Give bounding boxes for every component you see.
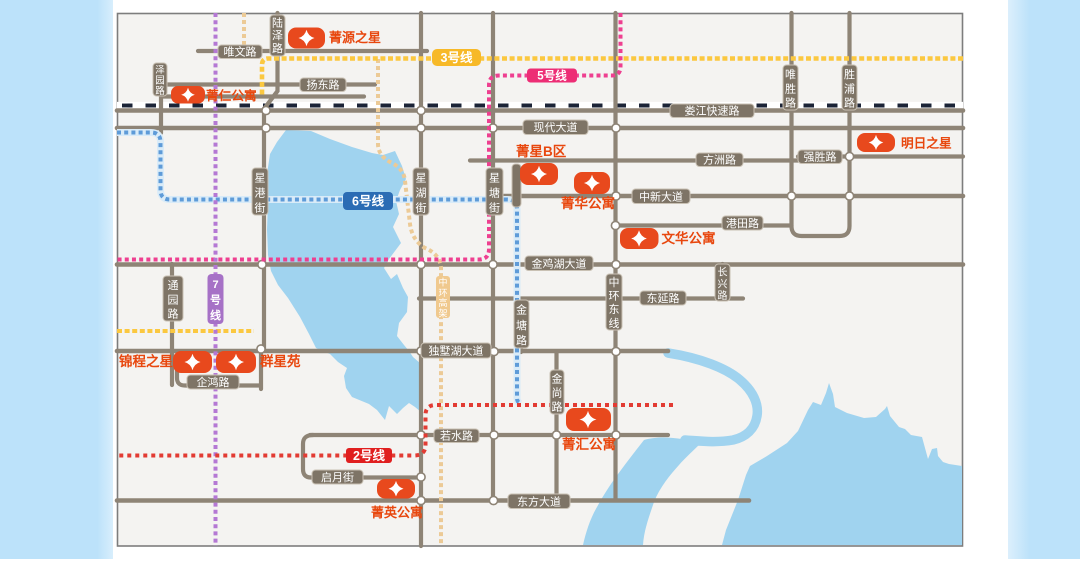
svg-text:方洲路: 方洲路 — [703, 153, 736, 167]
svg-text:启月街: 启月街 — [321, 470, 354, 484]
svg-text:唯文路: 唯文路 — [224, 45, 257, 59]
svg-text:菁汇公寓: 菁汇公寓 — [562, 436, 616, 452]
svg-text:星塘街: 星塘街 — [489, 172, 500, 215]
svg-text:胜浦路: 胜浦路 — [844, 67, 855, 110]
svg-text:锦程之星: 锦程之星 — [119, 353, 173, 369]
svg-text:文华公寓: 文华公寓 — [662, 230, 716, 246]
svg-text:中新大道: 中新大道 — [639, 190, 683, 204]
svg-text:星湖街: 星湖街 — [416, 172, 427, 215]
svg-text:3号线: 3号线 — [441, 50, 473, 65]
svg-text:港田路: 港田路 — [726, 217, 759, 230]
svg-text:明日之星: 明日之星 — [901, 136, 952, 151]
svg-text:菁源之星: 菁源之星 — [329, 30, 381, 45]
svg-text:星港街: 星港街 — [255, 172, 266, 215]
svg-text:陆泽路: 陆泽路 — [272, 16, 283, 55]
svg-text:现代大道: 现代大道 — [534, 120, 578, 134]
svg-text:若水路: 若水路 — [440, 430, 473, 443]
svg-text:金尚路: 金尚路 — [552, 372, 563, 414]
svg-text:菁星B区: 菁星B区 — [516, 143, 567, 159]
svg-text:东方大道: 东方大道 — [517, 495, 561, 509]
svg-text:企鸿路: 企鸿路 — [197, 375, 230, 389]
svg-text:强胜路: 强胜路 — [804, 150, 837, 164]
svg-text:通园路: 通园路 — [168, 279, 179, 321]
svg-text:菁华公寓: 菁华公寓 — [561, 195, 615, 211]
svg-text:独墅湖大道: 独墅湖大道 — [429, 344, 484, 358]
svg-text:群星苑: 群星苑 — [259, 353, 301, 369]
svg-text:娄江快速路: 娄江快速路 — [685, 105, 740, 118]
svg-text:5号线: 5号线 — [537, 69, 567, 83]
svg-text:2号线: 2号线 — [353, 448, 385, 463]
svg-text:金塘路: 金塘路 — [516, 303, 527, 348]
svg-text:东延路: 东延路 — [647, 292, 680, 305]
svg-text:长兴路: 长兴路 — [718, 267, 728, 303]
svg-text:唯胜路: 唯胜路 — [785, 68, 796, 110]
svg-text:扬东路: 扬东路 — [307, 78, 340, 92]
svg-text:菁英公寓: 菁英公寓 — [371, 505, 423, 520]
svg-text:泽园路: 泽园路 — [155, 65, 165, 97]
svg-text:金鸡湖大道: 金鸡湖大道 — [532, 257, 587, 271]
svg-text:中环高架: 中环高架 — [438, 277, 447, 319]
svg-text:菁仁公寓: 菁仁公寓 — [206, 88, 257, 103]
svg-text:6号线: 6号线 — [352, 194, 384, 209]
